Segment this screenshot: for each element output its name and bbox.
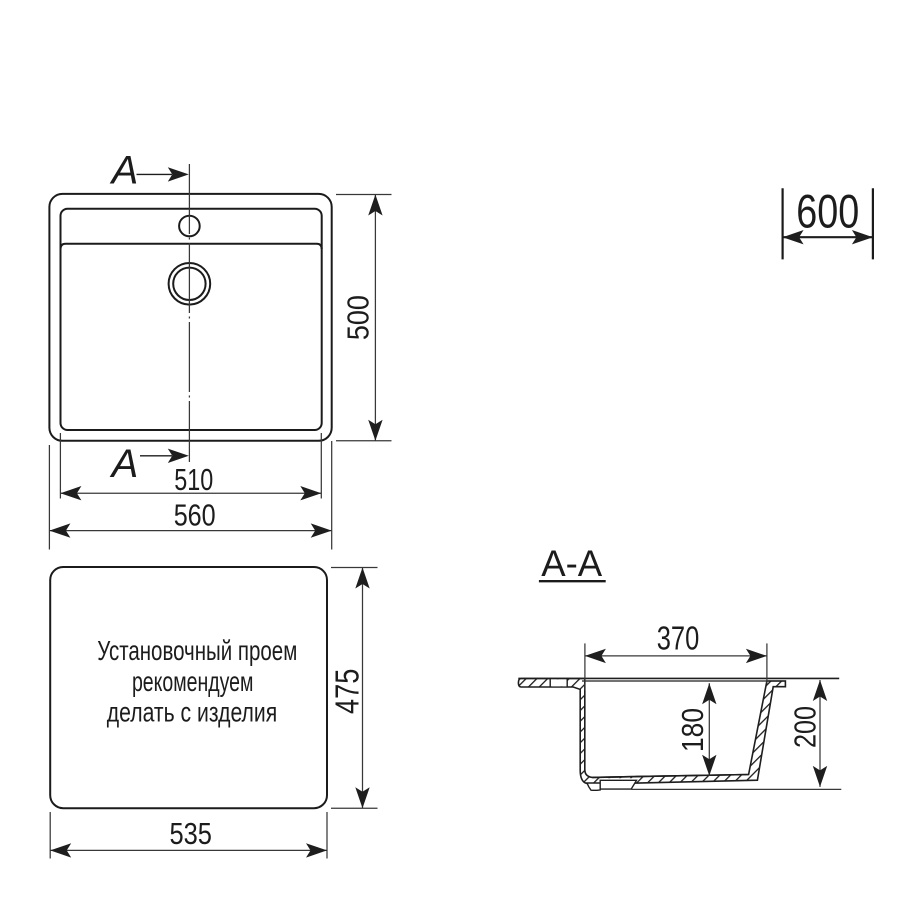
svg-text:475: 475 bbox=[329, 669, 366, 714]
svg-text:370: 370 bbox=[657, 620, 700, 657]
svg-text:Установочный проем: Установочный проем bbox=[97, 635, 297, 666]
svg-text:рекомендуем: рекомендуем bbox=[132, 666, 254, 697]
svg-text:A-A: A-A bbox=[541, 543, 602, 584]
svg-text:200: 200 bbox=[788, 706, 823, 748]
svg-text:A: A bbox=[110, 442, 139, 486]
svg-text:делать с изделия: делать с изделия bbox=[107, 697, 278, 728]
svg-text:180: 180 bbox=[675, 708, 710, 752]
svg-text:500: 500 bbox=[340, 295, 375, 340]
svg-text:510: 510 bbox=[174, 462, 213, 497]
svg-text:600: 600 bbox=[796, 185, 859, 238]
svg-text:560: 560 bbox=[174, 498, 216, 533]
svg-text:535: 535 bbox=[169, 816, 212, 851]
svg-text:A: A bbox=[110, 149, 139, 193]
